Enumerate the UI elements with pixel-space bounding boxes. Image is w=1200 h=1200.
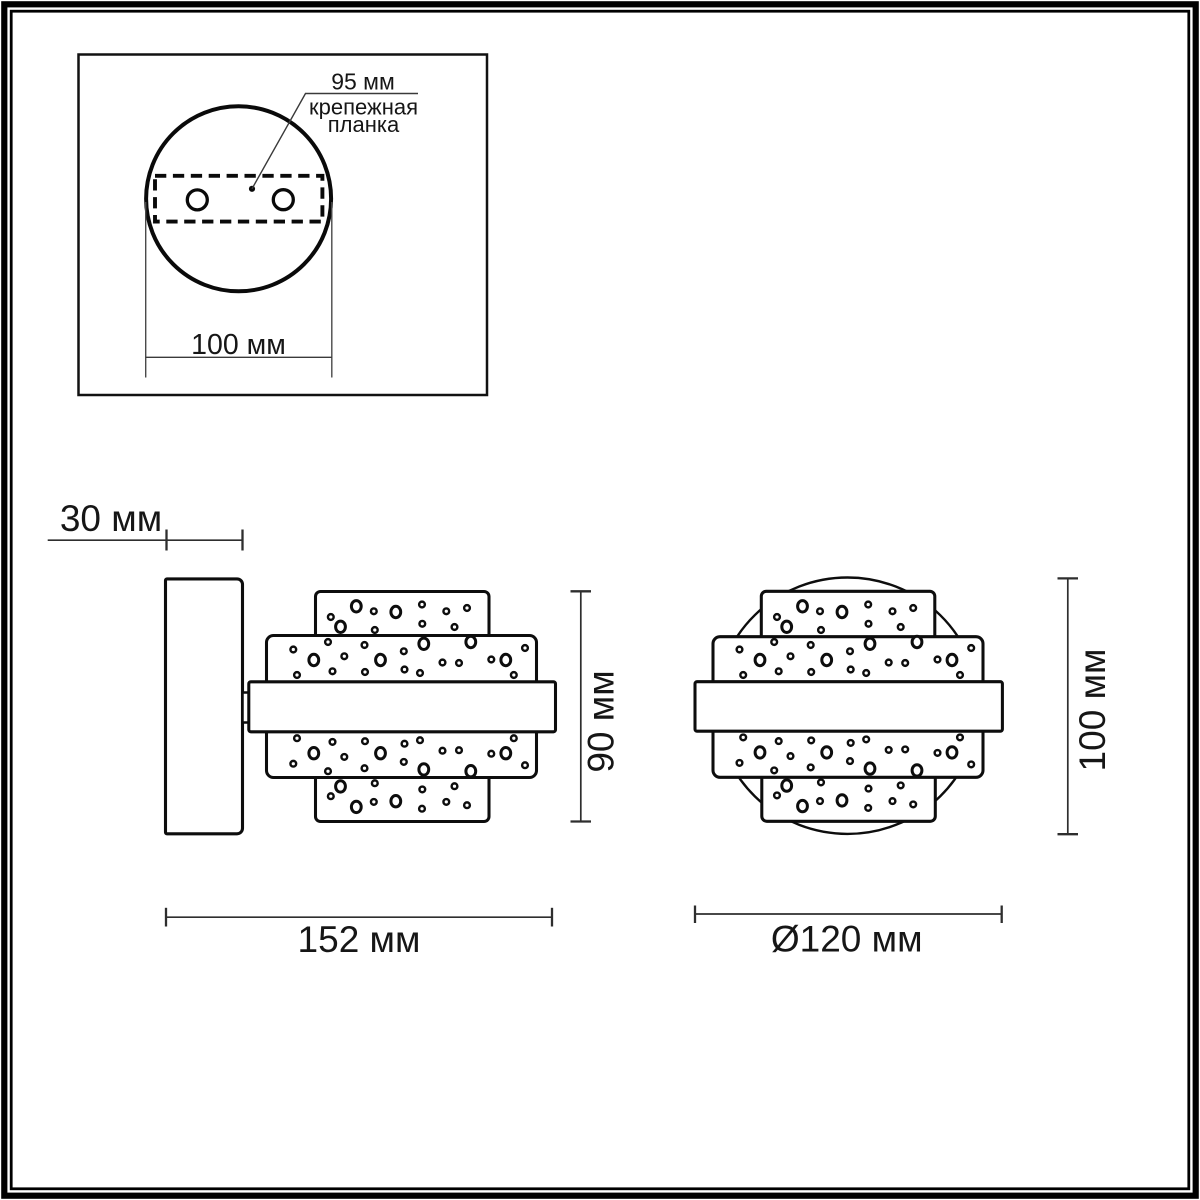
svg-text:95 мм: 95 мм xyxy=(331,69,395,95)
svg-text:100 мм: 100 мм xyxy=(1072,649,1113,772)
svg-text:90 мм: 90 мм xyxy=(581,670,622,772)
svg-text:Ø120 мм: Ø120 мм xyxy=(771,919,923,960)
svg-text:100 мм: 100 мм xyxy=(191,329,286,361)
svg-text:152 мм: 152 мм xyxy=(298,919,421,960)
svg-text:планка: планка xyxy=(328,112,400,137)
svg-text:30 мм: 30 мм xyxy=(60,498,162,539)
